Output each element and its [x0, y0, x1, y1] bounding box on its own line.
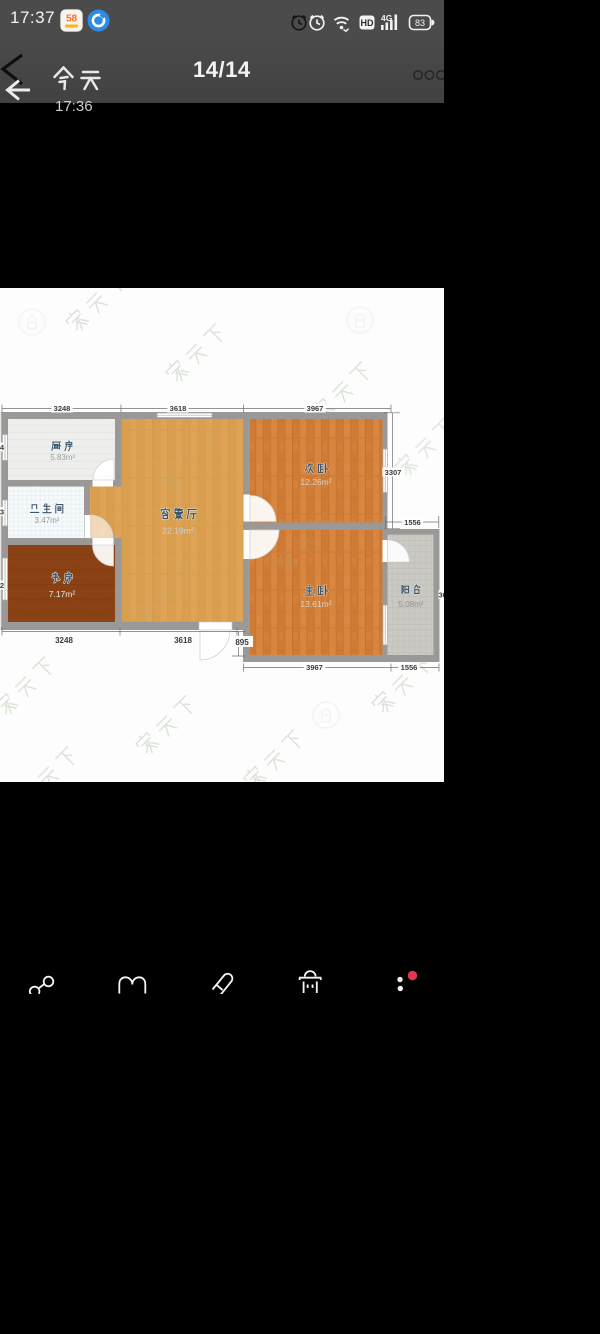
svg-text:1556: 1556 — [404, 518, 421, 527]
svg-text:895: 895 — [235, 638, 249, 647]
svg-text:73: 73 — [0, 508, 4, 517]
svg-text:12: 12 — [0, 581, 4, 590]
svg-text:58: 58 — [66, 14, 78, 25]
svg-text:3248: 3248 — [54, 404, 71, 413]
svg-text:13.61m²: 13.61m² — [300, 599, 331, 609]
svg-text:3.47m²: 3.47m² — [35, 516, 60, 525]
svg-text:12.26m²: 12.26m² — [300, 477, 331, 487]
svg-text:3967: 3967 — [307, 404, 324, 413]
svg-text:1556: 1556 — [401, 663, 418, 672]
svg-text:3618: 3618 — [170, 404, 187, 413]
svg-text:5.08m²: 5.08m² — [399, 600, 424, 609]
svg-text:3967: 3967 — [306, 663, 323, 672]
svg-text:83: 83 — [415, 18, 425, 28]
svg-text:7.17m²: 7.17m² — [49, 589, 76, 599]
svg-text:HD: HD — [361, 18, 374, 28]
svg-text:3618: 3618 — [174, 636, 192, 645]
svg-text:22.19m²: 22.19m² — [162, 526, 193, 536]
svg-text:3307: 3307 — [385, 468, 402, 477]
svg-text:5.83m²: 5.83m² — [50, 453, 75, 462]
svg-text:3248: 3248 — [55, 636, 73, 645]
svg-text:30: 30 — [439, 591, 445, 600]
